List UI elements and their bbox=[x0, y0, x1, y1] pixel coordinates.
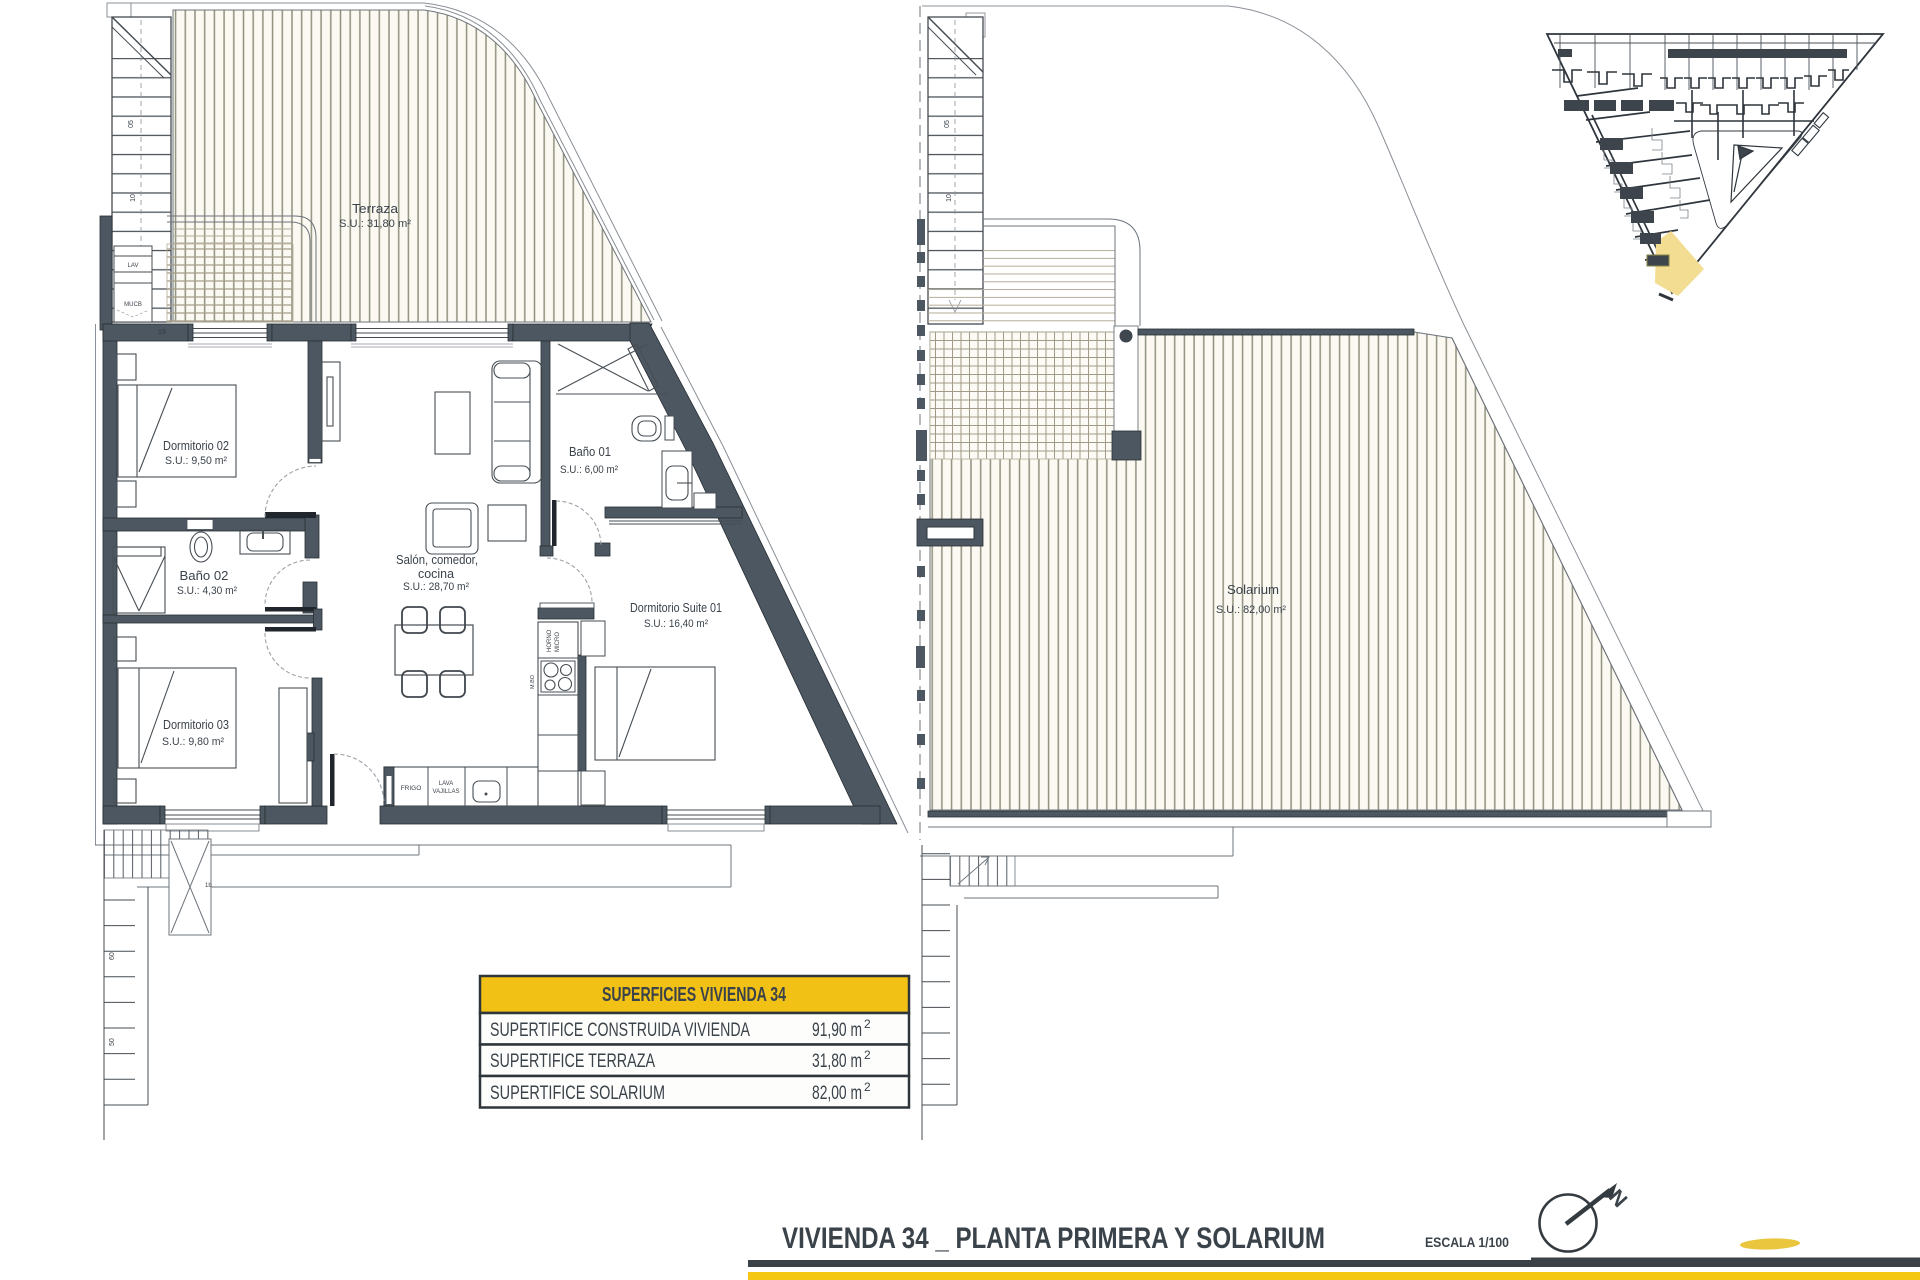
svg-text:cocina: cocina bbox=[418, 567, 454, 581]
svg-text:S.U.: 28,70 m²: S.U.: 28,70 m² bbox=[403, 581, 469, 593]
svg-text:2: 2 bbox=[864, 1080, 871, 1094]
svg-text:Baño 01: Baño 01 bbox=[569, 445, 611, 459]
svg-text:31,80 m: 31,80 m bbox=[812, 1051, 862, 1072]
svg-text:Dormitorio Suite 01: Dormitorio Suite 01 bbox=[630, 601, 722, 615]
svg-text:SUPERTIFICE CONSTRUIDA VIVIEND: SUPERTIFICE CONSTRUIDA VIVIENDA bbox=[490, 1020, 750, 1041]
svg-text:LAV: LAV bbox=[128, 263, 139, 269]
svg-text:S.U.: 6,00 m²: S.U.: 6,00 m² bbox=[560, 464, 618, 476]
svg-text:S.U.: 16,40 m²: S.U.: 16,40 m² bbox=[644, 618, 708, 630]
svg-text:VIVIENDA 34 _ PLANTA PRIMERA Y: VIVIENDA 34 _ PLANTA PRIMERA Y SOLARIUM bbox=[782, 1222, 1325, 1255]
svg-text:ESCALA 1/100: ESCALA 1/100 bbox=[1425, 1234, 1509, 1250]
svg-text:S.U.: 4,30 m²: S.U.: 4,30 m² bbox=[177, 585, 237, 597]
svg-text:FRIGO: FRIGO bbox=[401, 785, 422, 792]
svg-text:M.BO: M.BO bbox=[530, 674, 536, 689]
svg-text:05: 05 bbox=[944, 120, 951, 128]
svg-text:Solarium: Solarium bbox=[1227, 583, 1279, 597]
svg-text:Baño 02: Baño 02 bbox=[180, 569, 229, 583]
svg-text:82,00 m: 82,00 m bbox=[812, 1083, 862, 1104]
svg-text:S.U.: 82,00 m²: S.U.: 82,00 m² bbox=[1216, 604, 1286, 616]
svg-text:SUPERTIFICE TERRAZA: SUPERTIFICE TERRAZA bbox=[490, 1051, 655, 1072]
svg-text:MUCB: MUCB bbox=[124, 302, 142, 308]
svg-text:S.U.: 9,50 m²: S.U.: 9,50 m² bbox=[165, 455, 227, 467]
svg-text:Terraza: Terraza bbox=[352, 202, 398, 216]
svg-text:10: 10 bbox=[946, 194, 953, 202]
svg-text:Dormitorio 02: Dormitorio 02 bbox=[163, 439, 229, 453]
svg-text:2: 2 bbox=[864, 1017, 871, 1031]
svg-text:Salón, comedor,: Salón, comedor, bbox=[396, 553, 478, 567]
svg-text:50: 50 bbox=[109, 1038, 116, 1046]
svg-text:MICRO: MICRO bbox=[555, 632, 561, 652]
svg-text:2: 2 bbox=[864, 1048, 871, 1062]
svg-text:LAVA: LAVA bbox=[439, 781, 453, 787]
svg-text:Dormitorio 03: Dormitorio 03 bbox=[163, 718, 229, 732]
svg-text:HORNO: HORNO bbox=[547, 629, 553, 652]
svg-text:10: 10 bbox=[130, 194, 137, 202]
svg-text:15: 15 bbox=[158, 329, 166, 336]
svg-text:05: 05 bbox=[128, 120, 135, 128]
svg-text:SUPERTIFICE SOLARIUM: SUPERTIFICE SOLARIUM bbox=[490, 1083, 665, 1104]
svg-text:S.U.: 31,80 m²: S.U.: 31,80 m² bbox=[339, 218, 411, 230]
svg-text:91,90 m: 91,90 m bbox=[812, 1020, 862, 1041]
svg-text:SUPERFICIES VIVIENDA 34: SUPERFICIES VIVIENDA 34 bbox=[602, 984, 787, 1006]
svg-text:1b: 1b bbox=[205, 883, 212, 889]
svg-text:60: 60 bbox=[109, 952, 116, 960]
svg-text:S.U.: 9,80 m²: S.U.: 9,80 m² bbox=[162, 736, 224, 748]
svg-text:VAJILLAS: VAJILLAS bbox=[433, 789, 460, 795]
